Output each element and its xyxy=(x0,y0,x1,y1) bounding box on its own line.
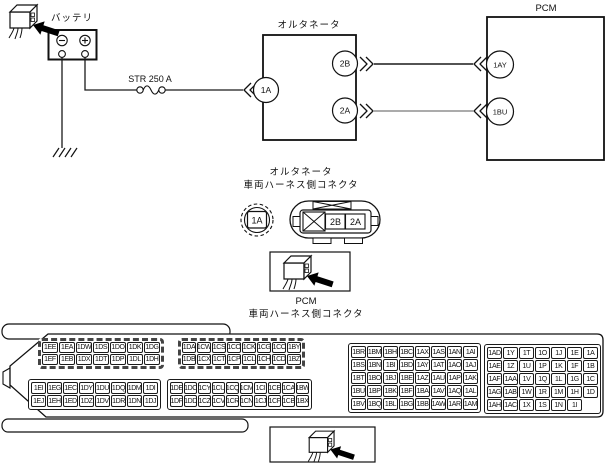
pin-cell: 1BD xyxy=(399,359,414,371)
pin-row: 1EE1EA1DW1DS1DO1DK1DG xyxy=(42,342,160,353)
pin-cell: 1AQ xyxy=(447,385,462,397)
pcm-label: PCM xyxy=(535,3,556,14)
pin-cell: 1BJ xyxy=(383,372,398,384)
pcm-connector-latch xyxy=(3,368,10,388)
alt-round-pin-label: 1A xyxy=(251,216,262,226)
pin-cell: 1O xyxy=(535,347,550,359)
pin-cell: 1BG xyxy=(399,398,414,410)
pin-row: 1BU1BP1BK1BF1BA1AV1AQ1AL xyxy=(351,385,478,397)
pin-cell: 1BN xyxy=(367,359,382,371)
pin-cell: 1CC xyxy=(272,342,286,353)
pcm-pin-1ay: 1AY xyxy=(487,51,514,78)
pin-cell: 1AF xyxy=(487,373,502,385)
pin-row: 1DE1DC1CY1CU1CQ1CM1CI1CE1CA1BW xyxy=(170,382,309,394)
pin-row: 1BT1BO1BJ1BE1AZ1AU1AP1AK xyxy=(351,372,478,384)
pin-cell: 1DG xyxy=(144,342,160,353)
pin-cell: 1EJ xyxy=(31,395,46,407)
pin-cell: 1H xyxy=(567,386,582,398)
pin-cell: 1U xyxy=(519,360,534,372)
pin-cell: 1AY xyxy=(415,359,430,371)
pin-cell: 1CZ xyxy=(198,395,211,407)
pin-cell: 1BB xyxy=(415,398,430,410)
ground-icon xyxy=(53,148,77,157)
pin-cell: 1CV xyxy=(212,395,225,407)
pin-cell: 1ED xyxy=(63,395,78,407)
pin-cell: 1DA xyxy=(182,342,196,353)
pin-cell: 1DX xyxy=(76,354,92,365)
pin-cell: 1J xyxy=(551,347,566,359)
pcm-box xyxy=(487,17,604,160)
pin-cell: 1CK xyxy=(242,342,256,353)
fuse-icon xyxy=(137,86,165,94)
pin-row: 1AF1AA1V1Q1L1G1C xyxy=(487,373,598,385)
pin-cell: 1CR xyxy=(226,395,239,407)
pin-cell: 1CX xyxy=(197,354,211,365)
alternator-label: オルタネータ xyxy=(277,20,340,31)
pin-cell: 1CW xyxy=(197,342,211,353)
pin-cell: 1CS xyxy=(212,342,226,353)
pin-cell: 1R xyxy=(535,386,550,398)
pin-cell: 1BH xyxy=(383,346,398,358)
pin-cell: 1BI xyxy=(383,359,398,371)
pin-cell: 1E xyxy=(567,347,582,359)
pin-cell: 1DC xyxy=(184,382,197,394)
pin-row: 1AD1Y1T1O1J1E1A xyxy=(487,347,598,359)
pin-row: 1DB1CX1CT1CP1CL1CH1CD1BZ xyxy=(182,354,301,365)
pcm-pin-block-2-top: 1DA1CW1CS1CO1CK1CG1CC1BY1DB1CX1CT1CP1CL1… xyxy=(178,338,305,369)
pin-cell: 1BQ xyxy=(367,398,382,410)
pin-cell: 1P xyxy=(535,360,550,372)
pcm-connector-title-line1: PCM xyxy=(295,296,316,307)
pin-cell: 1I xyxy=(567,399,582,411)
pin-cell: 1X xyxy=(519,399,534,411)
pin-cell: 1AX xyxy=(415,346,430,358)
pin-cell: 1AD xyxy=(487,347,502,359)
pin-row: 1AE1Z1U1P1K1F1B xyxy=(487,360,598,372)
pin-row: 1BV1BQ1BL1BG1BB1AW1AR1AM xyxy=(351,398,478,410)
pin-cell: 1AN xyxy=(447,346,462,358)
pin-cell: 1G xyxy=(567,373,582,385)
svg-text:2B: 2B xyxy=(340,59,351,69)
alt-connector-title-line2: 車両ハーネス側コネクタ xyxy=(243,179,358,191)
pin-cell: 1CN xyxy=(240,395,253,407)
pin-cell: 1AI xyxy=(463,346,478,358)
pin-cell: 1CY xyxy=(198,382,211,394)
svg-text:2A: 2A xyxy=(340,106,351,116)
fuse-label: STR 250 A xyxy=(128,74,172,84)
pin-cell: 1M xyxy=(551,386,566,398)
pin-cell: 1F xyxy=(567,360,582,372)
pin-cell: 1EH xyxy=(47,395,62,407)
pin-cell: 1DF xyxy=(170,395,183,407)
pin-cell: 1Q xyxy=(535,373,550,385)
pin-cell: 1DT xyxy=(93,354,109,365)
svg-text:1A: 1A xyxy=(261,85,272,95)
pin-cell: 1DM xyxy=(127,382,142,394)
pin-cell: 1BT xyxy=(351,372,366,384)
pin-cell: 1BV xyxy=(351,398,366,410)
pin-cell: 1CH xyxy=(257,354,271,365)
alt-connector-title-line1: オルタネータ xyxy=(269,167,332,178)
pin-cell: 1CD xyxy=(272,354,286,365)
pin-cell: 1BK xyxy=(383,385,398,397)
pin-cell: 1CG xyxy=(257,342,271,353)
svg-text:1AY: 1AY xyxy=(493,61,507,70)
pin-row: 1BS1BN1BI1BD1AY1AT1AO1AJ xyxy=(351,359,478,371)
pin-cell: 1DL xyxy=(127,354,143,365)
pin-cell: 1CM xyxy=(240,382,253,394)
pin-cell: 1S xyxy=(535,399,550,411)
pin-cell: 1BM xyxy=(367,346,382,358)
pin-cell: 1AG xyxy=(487,386,502,398)
pin-cell: 1DH xyxy=(144,354,160,365)
pin-cell: 1BL xyxy=(383,398,398,410)
pin-cell: 1CL xyxy=(242,354,256,365)
alt-oval-pin-2a: 2A xyxy=(350,217,361,227)
pin-cell: 1AC xyxy=(503,399,518,411)
pin-cell: 1BX xyxy=(296,395,309,407)
pin-cell: 1V xyxy=(519,373,534,385)
pin-cell: 1Z xyxy=(503,360,518,372)
pcm-pin-block-1-top: 1EE1EA1DW1DS1DO1DK1DG1EF1EB1DX1DT1DP1DL1… xyxy=(38,338,164,369)
pin-cell: 1BW xyxy=(296,382,309,394)
pin-cell: 1AV xyxy=(431,385,446,397)
pin-cell: 1EI xyxy=(31,382,46,394)
pcm-pin-block-3: 1BR1BM1BH1BC1AX1AS1AN1AI1BS1BN1BI1BD1AY1… xyxy=(348,343,481,413)
pin-cell: 1BU xyxy=(351,385,366,397)
pin-cell: 1DV xyxy=(95,395,110,407)
pin-cell: 1DU xyxy=(95,382,110,394)
pin-cell: 1DW xyxy=(76,342,92,353)
pin-row: 1DF1DD1CZ1CV1CR1CN1CJ1CF1CB1BX xyxy=(170,395,309,407)
pin-cell: 1AR xyxy=(447,398,462,410)
wiring-diagram-page: バッテリ STR 250 A xyxy=(0,0,616,465)
pin-cell: 1BZ xyxy=(287,354,301,365)
pin-cell: 1DD xyxy=(184,395,197,407)
inline-connector-chevron-2a xyxy=(360,104,373,118)
pin-cell: 1EA xyxy=(59,342,75,353)
pin-row: 1EJ1EH1ED1DZ1DV1DR1DN1DJ xyxy=(31,395,158,407)
alternator-pin-2b: 2B xyxy=(333,51,358,76)
pin-cell: 1AK xyxy=(463,372,478,384)
pin-row: 1BR1BM1BH1BC1AX1AS1AN1AI xyxy=(351,346,478,358)
pin-cell: 1AP xyxy=(447,372,462,384)
pin-cell: 1Y xyxy=(503,347,518,359)
pin-cell: 1DJ xyxy=(143,395,158,407)
pin-cell: 1BP xyxy=(367,385,382,397)
pin-cell: 1C xyxy=(583,373,598,385)
pin-cell: 1L xyxy=(551,373,566,385)
pin-cell: 1DO xyxy=(110,342,126,353)
pin-cell: 1AH xyxy=(487,399,502,411)
battery-label: バッテリ xyxy=(51,13,93,24)
pin-cell: 1CU xyxy=(212,382,225,394)
pin-cell: 1AT xyxy=(431,359,446,371)
pin-cell: 1EB xyxy=(59,354,75,365)
pin-cell: 1D xyxy=(583,386,598,398)
pin-cell: 1CA xyxy=(282,382,295,394)
pin-cell: 1BR xyxy=(351,346,366,358)
pin-cell: 1DN xyxy=(127,395,142,407)
plus-terminal-icon xyxy=(80,35,90,45)
pin-cell: 1DP xyxy=(110,354,126,365)
minus-terminal-icon xyxy=(57,35,67,45)
pin-cell: 1DR xyxy=(111,395,126,407)
pin-cell: 1EG xyxy=(47,382,62,394)
pin-cell: 1DE xyxy=(170,382,183,394)
pin-cell: 1CO xyxy=(227,342,241,353)
pin-cell: 1T xyxy=(519,347,534,359)
pcm-pin-block-4: 1AD1Y1T1O1J1E1A1AE1Z1U1P1K1F1B1AF1AA1V1Q… xyxy=(484,344,601,414)
pin-cell: 1B xyxy=(583,360,598,372)
pin-cell: 1DQ xyxy=(111,382,126,394)
pin-cell: 1DS xyxy=(93,342,109,353)
pin-cell: 1DB xyxy=(182,354,196,365)
pin-cell: 1W xyxy=(519,386,534,398)
pin-cell: 1DK xyxy=(127,342,143,353)
pin-cell: 1CJ xyxy=(254,395,267,407)
inline-connector-chevron-1bu xyxy=(474,104,487,118)
pin-cell: 1CT xyxy=(212,354,226,365)
pin-cell: 1AZ xyxy=(415,372,430,384)
svg-text:1BU: 1BU xyxy=(493,108,508,117)
alternator-pin-1a: 1A xyxy=(254,78,279,103)
pin-cell: 1AS xyxy=(431,346,446,358)
pin-cell: 1BE xyxy=(399,372,414,384)
pin-row: 1AG1AB1W1R1M1H1D xyxy=(487,386,598,398)
pin-cell: 1CP xyxy=(227,354,241,365)
pcm-pin-block-2-bottom: 1DE1DC1CY1CU1CQ1CM1CI1CE1CA1BW1DF1DD1CZ1… xyxy=(167,379,312,410)
pin-cell: 1EE xyxy=(42,342,58,353)
pin-cell: 1AJ xyxy=(463,359,478,371)
pin-cell: 1BC xyxy=(399,346,414,358)
pin-cell: 1BY xyxy=(287,342,301,353)
pcm-pin-1bu: 1BU xyxy=(487,98,514,125)
pin-cell: 1BS xyxy=(351,359,366,371)
pin-cell: 1K xyxy=(551,360,566,372)
pin-row: 1EI1EG1EC1DY1DU1DQ1DM1DI xyxy=(31,382,158,394)
pin-cell: 1CB xyxy=(282,395,295,407)
pin-cell: 1EF xyxy=(42,354,58,365)
pin-cell: 1CI xyxy=(254,382,267,394)
alt-oval-connector: 2B 2A xyxy=(290,201,380,244)
pin-cell: 1AW xyxy=(431,398,446,410)
pin-cell: 1AL xyxy=(463,385,478,397)
inline-connector-chevron-2b xyxy=(360,57,373,71)
alt-oval-pin-2b: 2B xyxy=(330,217,341,227)
pcm-connector-title-line2: 車両ハーネス側コネクタ xyxy=(248,308,363,320)
pin-cell: 1CE xyxy=(268,382,281,394)
inline-connector-chevron-1ay xyxy=(474,57,487,71)
pin-cell: 1AO xyxy=(447,359,462,371)
pin-cell: 1DY xyxy=(79,382,94,394)
pin-cell: 1DI xyxy=(143,382,158,394)
pin-cell: 1CQ xyxy=(226,382,239,394)
pin-cell: 1A xyxy=(583,347,598,359)
pin-cell: 1AA xyxy=(503,373,518,385)
pin-row: 1EF1EB1DX1DT1DP1DL1DH xyxy=(42,354,160,365)
pin-cell: 1N xyxy=(551,399,566,411)
pin-row: 1AH1AC1X1S1N1I xyxy=(487,399,598,411)
pin-cell: 1BA xyxy=(415,385,430,397)
pin-row: 1DA1CW1CS1CO1CK1CG1CC1BY xyxy=(182,342,301,353)
pin-cell: 1AM xyxy=(463,398,478,410)
alt-round-connector: 1A xyxy=(241,204,273,236)
pcm-pin-block-1-bottom: 1EI1EG1EC1DY1DU1DQ1DM1DI1EJ1EH1ED1DZ1DV1… xyxy=(28,379,161,410)
pin-cell: 1AE xyxy=(487,360,502,372)
pin-cell: 1EC xyxy=(63,382,78,394)
pin-cell: 1CF xyxy=(268,395,281,407)
pin-cell: 1BF xyxy=(399,385,414,397)
alternator-pin-2a: 2A xyxy=(333,98,358,123)
pin-cell: 1BO xyxy=(367,372,382,384)
pin-cell: 1DZ xyxy=(79,395,94,407)
pin-cell: 1AU xyxy=(431,372,446,384)
pin-cell: 1AB xyxy=(503,386,518,398)
